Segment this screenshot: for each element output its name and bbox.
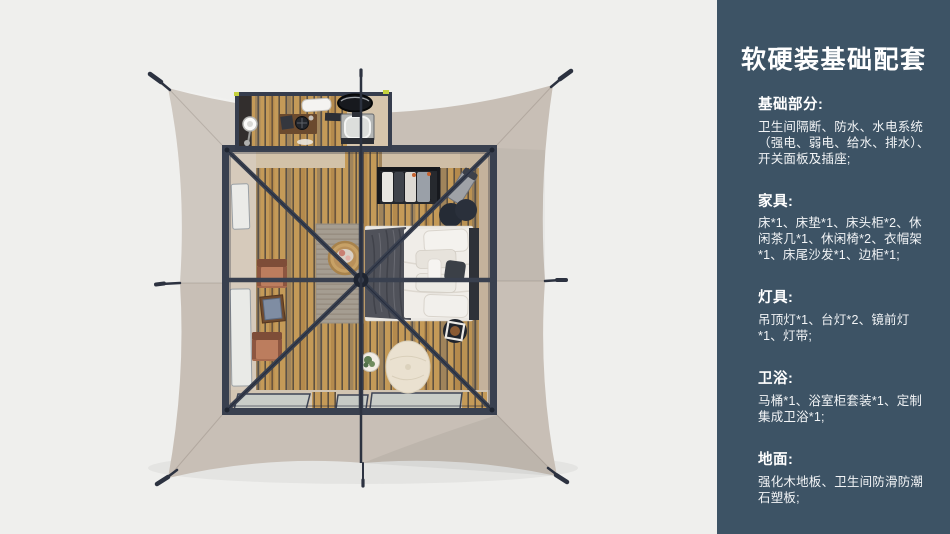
side-cabinet xyxy=(260,295,286,323)
section-furniture: 家具: 床*1、床垫*1、床头柜*2、休闲茶几*1、休闲椅*2、衣帽架*1、床尾… xyxy=(758,193,934,264)
bath-skylight xyxy=(302,98,332,112)
section-flooring-title: 地面: xyxy=(758,451,934,470)
section-furniture-body: 床*1、床垫*1、床头柜*2、休闲茶几*1、休闲椅*2、衣帽架*1、床尾沙发*1… xyxy=(758,215,934,263)
washbasin-unit xyxy=(341,112,374,144)
section-bathroom-title: 卫浴: xyxy=(758,370,934,389)
bed xyxy=(365,226,479,321)
vanity-desk xyxy=(279,114,317,134)
section-basics-body: 卫生间隔断、防水、水电系统（强电、弱电、给水、排水）、开关面板及插座; xyxy=(758,119,934,167)
lounge-chair-2 xyxy=(252,332,282,361)
bedside-stool xyxy=(443,319,467,343)
section-flooring-body: 强化木地板、卫生间防滑防潮石塑板; xyxy=(758,474,934,506)
section-furniture-title: 家具: xyxy=(758,193,934,212)
spec-panel: 软硬装基础配套 基础部分: 卫生间隔断、防水、水电系统（强电、弱电、给水、排水）… xyxy=(717,0,950,534)
corner-marker xyxy=(383,90,389,94)
wardrobe-rack xyxy=(377,167,440,204)
section-flooring: 地面: 强化木地板、卫生间防滑防潮石塑板; xyxy=(758,451,934,506)
panel-title: 软硬装基础配套 xyxy=(741,46,938,75)
section-basics-title: 基础部分: xyxy=(758,96,934,115)
headboard xyxy=(469,228,479,320)
section-bathroom: 卫浴: 马桶*1、浴室柜套装*1、定制集成卫浴*1; xyxy=(758,370,934,425)
basket-chair xyxy=(329,242,361,274)
corner-marker xyxy=(234,92,239,96)
pillow xyxy=(424,294,469,318)
section-lighting: 灯具: 吊顶灯*1、台灯*2、镜前灯*1、灯带; xyxy=(758,289,934,344)
section-bathroom-body: 马桶*1、浴室柜套装*1、定制集成卫浴*1; xyxy=(758,393,934,425)
section-lighting-body: 吊顶灯*1、台灯*2、镜前灯*1、灯带; xyxy=(758,312,934,344)
slide: 软硬装基础配套 基础部分: 卫生间隔断、防水、水电系统（强电、弱电、给水、排水）… xyxy=(0,0,950,534)
tent-floorplan-render xyxy=(0,0,717,534)
bathroom xyxy=(234,90,390,148)
steel-frame xyxy=(225,148,495,413)
side-table xyxy=(361,353,380,372)
round-mirror xyxy=(338,95,372,112)
floorplan-scene xyxy=(0,0,717,534)
section-basics: 基础部分: 卫生间隔断、防水、水电系统（强电、弱电、给水、排水）、开关面板及插座… xyxy=(758,96,934,167)
lounge-chair-1 xyxy=(257,259,287,288)
section-lighting-title: 灯具: xyxy=(758,289,934,308)
beanbag xyxy=(386,341,430,393)
